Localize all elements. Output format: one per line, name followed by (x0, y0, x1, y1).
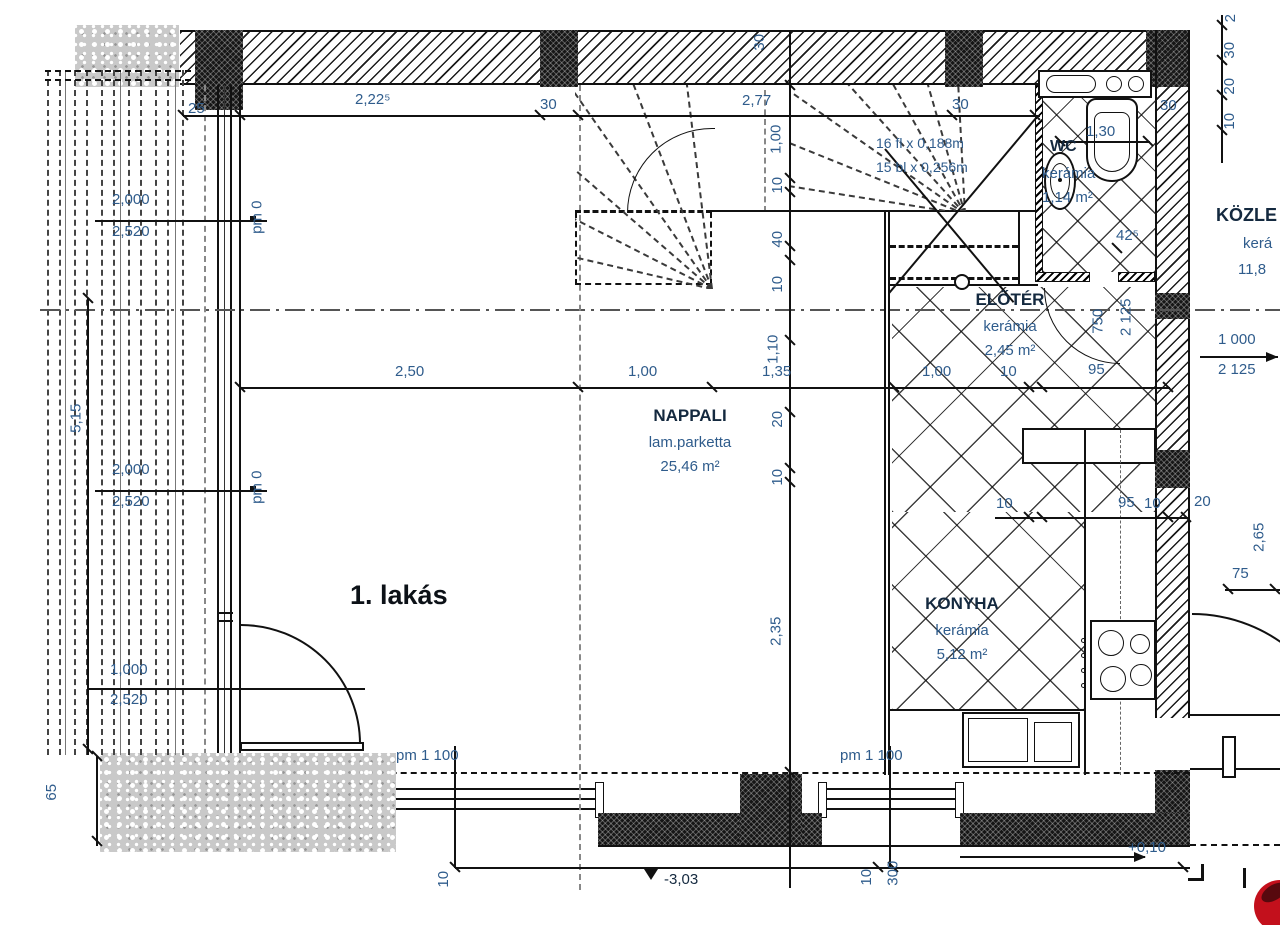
structure-line (120, 70, 121, 755)
level-pointer-line (95, 490, 267, 492)
structure-line (113, 70, 115, 755)
window-sill-line (820, 808, 962, 810)
level-label: pm 1 100 (840, 748, 903, 765)
kitchen-sink-small (1034, 722, 1072, 762)
dim-label: 1,10 (765, 335, 782, 364)
glazing-joint (217, 620, 233, 622)
dim-line-vertical (789, 30, 791, 888)
dim-label: 2,520 (112, 494, 150, 511)
dim-label: 65 (44, 784, 61, 801)
dim-label: 2,35 (768, 617, 785, 646)
cooktop-knob (1081, 683, 1086, 688)
room-label-eloter: ELŐTÉR kerámia 2,45 m² (950, 290, 1070, 366)
stair-newel-circle (954, 274, 970, 290)
structure-line (140, 70, 142, 755)
room-label-konyha: KONYHA kerámia 5,12 m² (902, 594, 1022, 670)
door-swing-circle (1192, 613, 1280, 768)
left-axis-dashed (204, 85, 206, 775)
dim-label: 2,520 (110, 692, 148, 709)
burner (1098, 630, 1124, 656)
dim-line-kitchen (995, 517, 1190, 519)
dim-label: 20 (1222, 78, 1239, 95)
dim-label: 10 (859, 869, 876, 886)
room-name: ELŐTÉR (950, 290, 1070, 310)
structure-line (59, 70, 61, 755)
room-label-nappali: NAPPALI lam.parketta 25,46 m² (615, 406, 765, 482)
counter-centerline (1120, 430, 1121, 775)
wall-column (540, 30, 578, 87)
structure-cap (45, 79, 191, 81)
structure-line (155, 70, 157, 755)
structure-line (182, 70, 184, 755)
logo-swoosh (1258, 879, 1280, 907)
dim-label: 10 (1222, 113, 1239, 130)
level-marker-icon (644, 869, 658, 880)
room-floor: kerámia (902, 622, 1022, 639)
room-name-wc: WC (1050, 138, 1077, 156)
burner (1130, 634, 1150, 654)
level-arrow-line (960, 856, 1145, 858)
dim-line-515 (87, 298, 89, 755)
dim-label: 2 125 (1119, 298, 1136, 336)
dim-label: 5,15 (68, 404, 85, 433)
structure-line (47, 70, 49, 755)
structure-line (128, 70, 130, 755)
dim-label: 30 (540, 97, 557, 114)
walkline-circle (627, 128, 715, 213)
konyha-boundary-line (890, 709, 1086, 711)
window-sill-line (820, 798, 962, 800)
dim-line-65 (96, 756, 98, 846)
apartment-title: 1. lakás (350, 580, 448, 611)
dim-label: 10 (770, 469, 787, 486)
vanity-knob (1128, 76, 1144, 92)
dim-label: 750 (1090, 309, 1107, 334)
dim-label: 30 (752, 34, 769, 51)
dim-label: 30 (1222, 42, 1239, 59)
door-swing-circle (241, 624, 361, 744)
dim-label: 2,77 (742, 93, 771, 110)
room-floor: kerá (1243, 236, 1272, 253)
wall-column (945, 30, 983, 87)
structure-line (175, 70, 176, 755)
structure-line (65, 70, 66, 755)
vanity-knob (1106, 76, 1122, 92)
structure-line (101, 70, 103, 755)
corridor-door-arc (1192, 610, 1280, 768)
room-name: NAPPALI (615, 406, 765, 426)
level-label: -3,03 (664, 872, 698, 889)
cooktop-knob (1081, 653, 1086, 658)
dim-label: 10 (770, 276, 787, 293)
dim-label: 30 (1160, 98, 1177, 115)
dim-arrow (1266, 352, 1278, 362)
corner-mark (1201, 864, 1204, 881)
room-area: 25,46 m² (615, 458, 765, 475)
dim-label: 42⁵ (1116, 228, 1139, 245)
room-name-kozlekedo: KÖZLE (1216, 206, 1277, 226)
dim-label: 75 (1232, 566, 1249, 583)
dim-label: 20 (1194, 494, 1211, 511)
left-glazing-line (230, 85, 232, 758)
dim-label: 2,65 (1251, 523, 1268, 552)
dim-label: 1,00 (768, 125, 785, 154)
dim-label: 1,30 (1086, 124, 1115, 141)
window-sill-line (820, 788, 962, 790)
room-area: 1,14 m² (1042, 190, 1093, 207)
dim-label: 10 (1144, 496, 1161, 513)
dim-label: 10 (770, 177, 787, 194)
dim-label: 40 (770, 231, 787, 248)
wc-wall (1035, 272, 1090, 282)
dim-label: 10 (436, 871, 453, 888)
dim-label: 25 (188, 101, 205, 118)
dim-label: 20 (770, 411, 787, 428)
corridor-floor-dashed (1190, 844, 1280, 846)
dim-label: 2 125 (1218, 362, 1256, 379)
wall-column (1155, 450, 1190, 488)
room-floor: kerámia (950, 318, 1070, 335)
room-name: KONYHA (902, 594, 1022, 614)
gravel-texture (100, 753, 396, 852)
cooktop-knob (1081, 638, 1086, 643)
wc-wall (1118, 272, 1155, 282)
room-area: 11,8 (1238, 262, 1266, 279)
glazing-joint (217, 612, 233, 614)
entry-door-arc (241, 624, 363, 744)
dim-label: 1,35 (762, 364, 791, 381)
level-label: +0,10 (1128, 840, 1166, 857)
stair-edge (1018, 212, 1020, 285)
left-glazing-line (217, 85, 219, 758)
dim-label: 2 (1223, 14, 1240, 22)
wall-right (1155, 30, 1190, 718)
dim-label: 95 (1088, 362, 1105, 379)
wall-column (1155, 293, 1190, 319)
room-area: 5,12 m² (902, 646, 1022, 663)
level-label: pm 1 100 (396, 748, 459, 765)
kitchen-cabinet (1022, 428, 1156, 464)
room-floor: lam.parketta (615, 434, 765, 451)
dim-line-top (183, 115, 1040, 117)
wall-interior (884, 212, 890, 775)
burner (1100, 666, 1126, 692)
cooktop (1090, 620, 1156, 700)
dim-label: 2,50 (395, 364, 424, 381)
logo-badge (1254, 880, 1280, 925)
level-pointer-line (95, 220, 267, 222)
vanity-basin (1046, 75, 1096, 93)
dim-label: 2,520 (112, 224, 150, 241)
corner-mark (1243, 868, 1246, 888)
stair-note: 15 bl x 0,256m (876, 160, 968, 175)
dim-label: 2,000 (112, 462, 150, 479)
dim-label: 1,00 (628, 364, 657, 381)
level-label: pm 0 (249, 471, 266, 504)
dim-label: 10 (996, 496, 1013, 513)
stair-note: 16 fl x 0,188m (876, 136, 964, 151)
structure-line (167, 70, 169, 755)
dim-label: 300 (885, 861, 902, 886)
room-floor: kerámia (1042, 166, 1095, 183)
dim-label: 10 (1000, 364, 1017, 381)
dim-label: 2,22⁵ (355, 92, 390, 109)
counter-edge-line (1084, 430, 1086, 775)
dim-label: 2,000 (112, 192, 150, 209)
structure-cap (45, 70, 191, 72)
wall-column (195, 30, 243, 110)
stair-step (890, 245, 1018, 248)
wall-column (740, 774, 802, 845)
stair-walkline-arc (615, 125, 715, 213)
dim-label: 1,000 (110, 662, 148, 679)
floor-plan: 25 2,22⁵ 30 2,77 30 30 30 2 30 20 10 2,0… (0, 0, 1280, 925)
dim-label: 1,00 (922, 364, 951, 381)
level-label: pm 0 (249, 201, 266, 234)
dim-label: 95 (1118, 495, 1135, 512)
dim-line-bottom (455, 867, 1190, 869)
cooktop-knob (1081, 668, 1086, 673)
dim-label: 30 (952, 97, 969, 114)
dim-line-75 (1225, 589, 1280, 591)
kitchen-sink (968, 718, 1028, 762)
burner (1130, 664, 1152, 686)
left-glazing-line (224, 85, 225, 758)
level-pointer-line (88, 688, 365, 690)
dim-label: 1 000 (1218, 332, 1256, 349)
wall-bottom-line (598, 845, 1190, 847)
room-area: 2,45 m² (950, 342, 1070, 359)
